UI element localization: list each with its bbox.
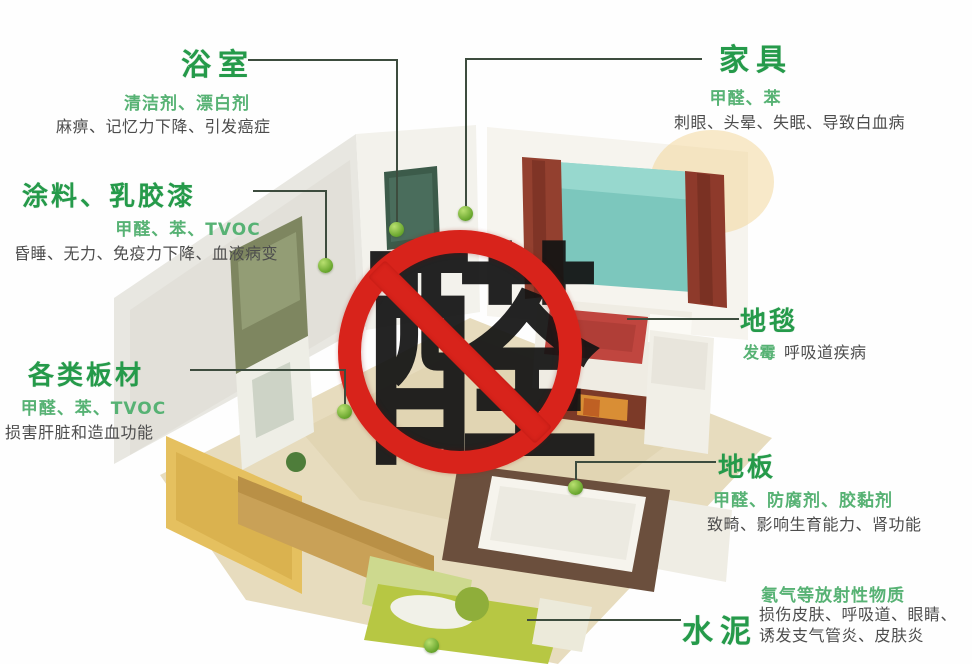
leader-line <box>627 318 739 320</box>
marker-dot <box>389 222 404 237</box>
callout-cement-pollutants: 氡气等放射性物质 <box>761 581 966 606</box>
callout-boards-title: 各类板材 <box>28 355 193 392</box>
callout-floor-effects: 致畸、影响生育能力、肾功能 <box>707 511 937 535</box>
callout-cement-effects: 损伤皮肤、呼吸道、眼睛、诱发支气管炎、皮肤炎 <box>759 604 964 647</box>
no-aldehyde-sign <box>338 230 582 474</box>
callout-boards-effects: 损害肝脏和造血功能 <box>5 419 190 443</box>
callout-carpet-title: 地毯 <box>740 301 850 338</box>
callout-paint-title: 涂料、乳胶漆 <box>22 176 292 213</box>
leader-line <box>190 369 346 371</box>
callout-paint-effects: 昏睡、无力、免疫力下降、血液病变 <box>14 240 304 264</box>
callout-floor-pollutants: 甲醛、防腐剂、胶黏剂 <box>713 486 933 511</box>
callout-carpet-effects: 呼吸道疾病 <box>784 343 867 362</box>
leader-line <box>396 59 398 227</box>
callout-paint-pollutants: 甲醛、苯、TVOC <box>88 215 288 240</box>
callout-furniture-title: 家具 <box>701 35 811 79</box>
leader-line <box>527 619 681 621</box>
callout-carpet-pollutants: 发霉 <box>743 343 776 362</box>
callout-boards-pollutants: 甲醛、苯、TVOC <box>6 394 181 419</box>
marker-dot <box>337 404 352 419</box>
infographic-canvas: 醛 浴室 清洁剂、漂白剂 麻痹、记忆力下降、引发癌症 涂料、乳胶漆 甲醛、苯、T… <box>0 0 972 664</box>
leader-line <box>465 58 467 208</box>
callout-floor-title: 地板 <box>718 447 828 484</box>
leader-line <box>576 461 716 463</box>
marker-dot <box>318 258 333 273</box>
callout-bathroom-title: 浴室 <box>163 40 273 84</box>
leader-line <box>466 58 702 60</box>
leader-line <box>344 369 346 407</box>
callout-carpet-sub: 发霉呼吸道疾病 <box>743 339 913 363</box>
marker-dot <box>424 638 439 653</box>
callout-bathroom-pollutants: 清洁剂、漂白剂 <box>92 89 282 114</box>
marker-dot <box>458 206 473 221</box>
callout-furniture-effects: 刺眼、头晕、失眠、导致白血病 <box>674 109 919 133</box>
callout-furniture-pollutants: 甲醛、苯 <box>693 84 798 109</box>
marker-dot <box>568 480 583 495</box>
callout-bathroom-effects: 麻痹、记忆力下降、引发癌症 <box>56 113 301 137</box>
leader-line <box>325 190 327 260</box>
